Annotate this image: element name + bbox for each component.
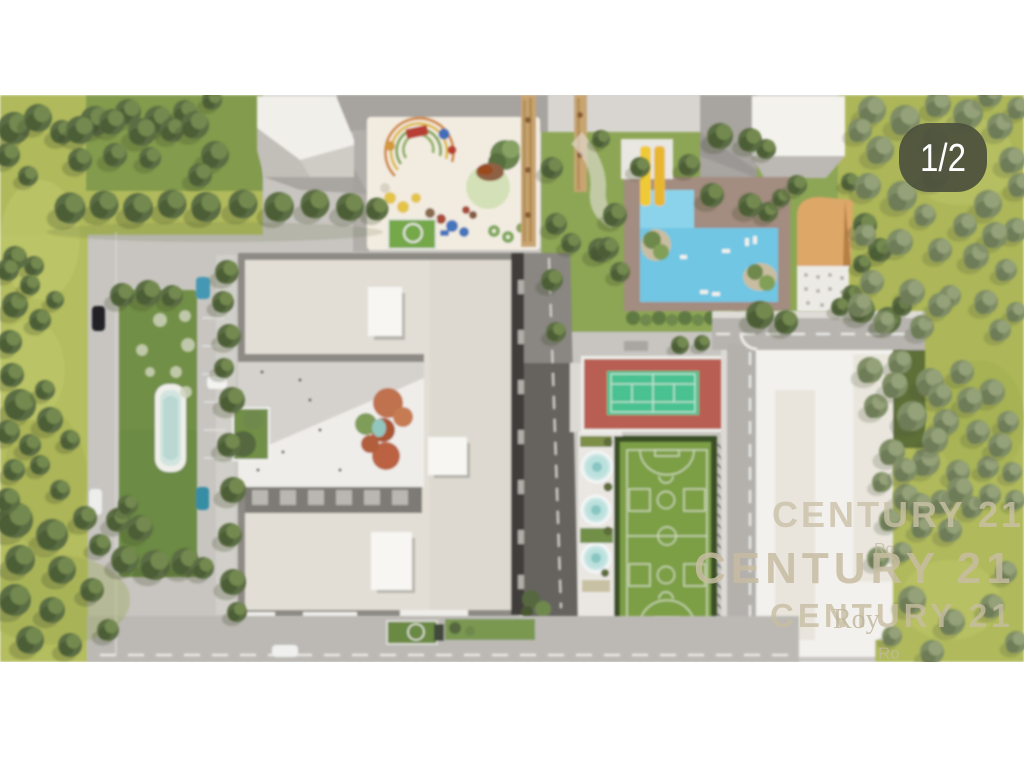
svg-text:CENTURY 21: CENTURY 21 bbox=[772, 494, 1024, 535]
svg-text:CENTURY 21: CENTURY 21 bbox=[694, 544, 1015, 593]
svg-text:Ro: Ro bbox=[878, 644, 900, 663]
svg-text:Roy: Roy bbox=[833, 604, 880, 635]
svg-text:1/2: 1/2 bbox=[920, 137, 966, 180]
svg-text:CENTURY 21: CENTURY 21 bbox=[770, 597, 1014, 634]
